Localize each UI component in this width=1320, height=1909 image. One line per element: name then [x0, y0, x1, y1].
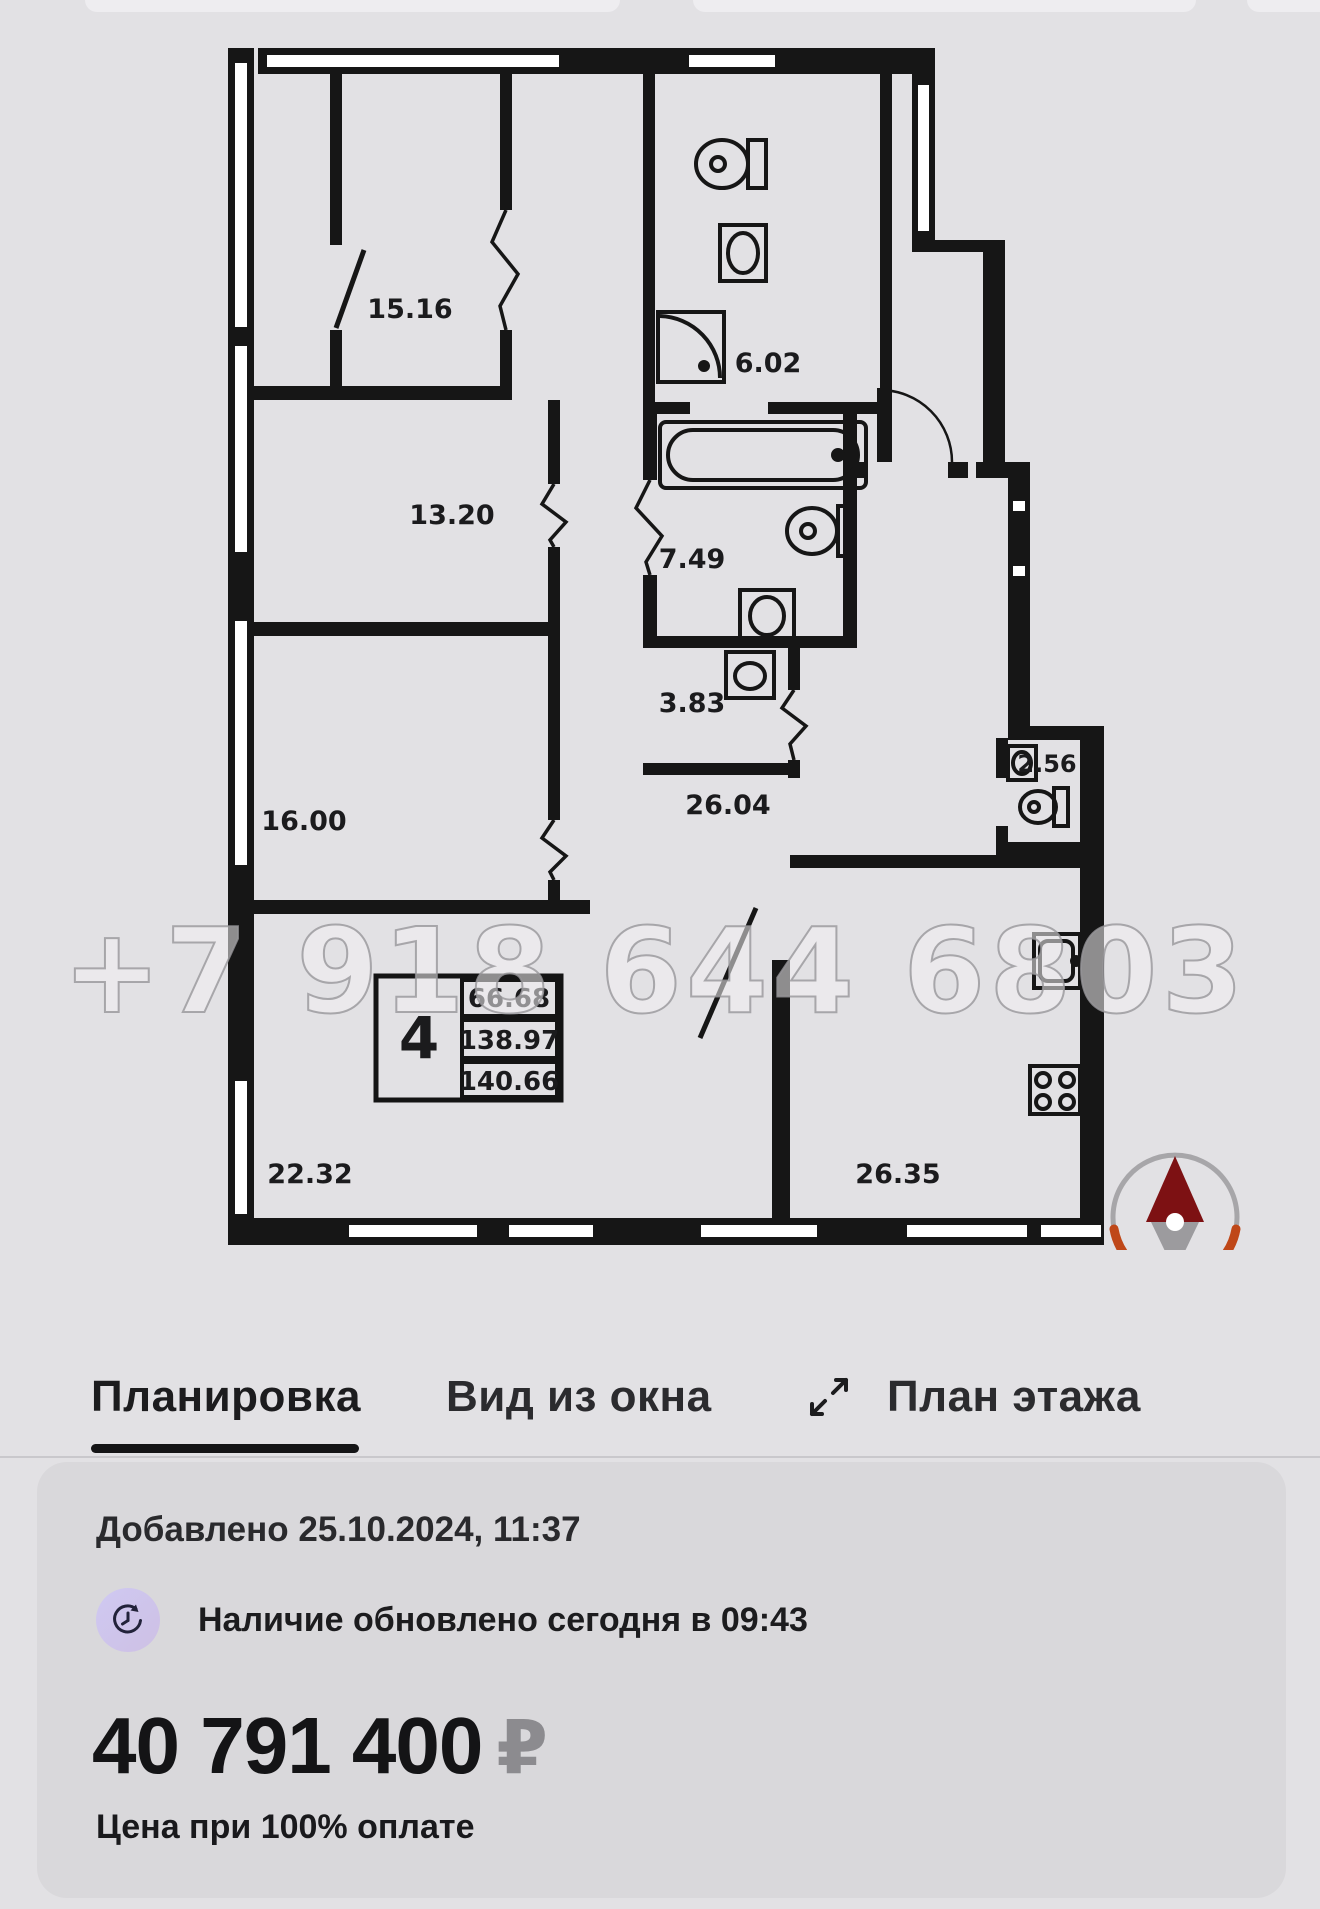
room-labels: 15.16 13.20 6.02 7.49 3.83 16.00 26.04 2…: [261, 294, 1076, 1190]
added-date-text: Добавлено 25.10.2024, 11:37: [96, 1510, 581, 1550]
room-label: 2.56: [1017, 750, 1076, 778]
expand-icon[interactable]: [800, 1368, 858, 1426]
phone-watermark: +7 918 644 6803: [62, 902, 1247, 1040]
room-label: 16.00: [261, 806, 346, 837]
price-value: 40 791 400: [92, 1701, 482, 1790]
room-label: 3.83: [659, 688, 726, 719]
room-label: 6.02: [735, 348, 802, 379]
listing-info-card: Добавлено 25.10.2024, 11:37 Наличие обно…: [37, 1462, 1286, 1898]
tabs-divider: [0, 1456, 1320, 1458]
floor-plan-image[interactable]: 15.16 13.20 6.02 7.49 3.83 16.00 26.04 2…: [0, 0, 1320, 1250]
tab-planirovka[interactable]: Планировка: [91, 1372, 361, 1422]
active-tab-underline: [91, 1444, 359, 1453]
tabs-bar: Планировка Вид из окна План этажа: [0, 1360, 1320, 1460]
room-label: 26.04: [685, 790, 770, 821]
room-label: 22.32: [267, 1159, 352, 1190]
ruble-sign: ₽: [496, 1706, 547, 1789]
tab-plan-etazha[interactable]: План этажа: [887, 1372, 1141, 1422]
walls: [228, 48, 1104, 1245]
clock-refresh-icon: [96, 1588, 160, 1652]
availability-row: Наличие обновлено сегодня в 09:43: [96, 1587, 808, 1653]
room-label: 15.16: [367, 294, 452, 325]
compass-needle-north: [1146, 1156, 1204, 1222]
compass-icon: [1113, 1155, 1237, 1250]
price-line: 40 791 400₽: [92, 1700, 547, 1792]
room-label: 7.49: [659, 544, 726, 575]
area-bottom: 140.66: [459, 1067, 559, 1097]
room-label: 13.20: [409, 500, 494, 531]
room-label: 26.35: [855, 1159, 940, 1190]
tab-vid-iz-okna[interactable]: Вид из окна: [446, 1372, 712, 1422]
listing-screen: 15.16 13.20 6.02 7.49 3.83 16.00 26.04 2…: [0, 0, 1320, 1909]
price-note: Цена при 100% оплате: [96, 1808, 474, 1847]
availability-text: Наличие обновлено сегодня в 09:43: [198, 1601, 808, 1640]
